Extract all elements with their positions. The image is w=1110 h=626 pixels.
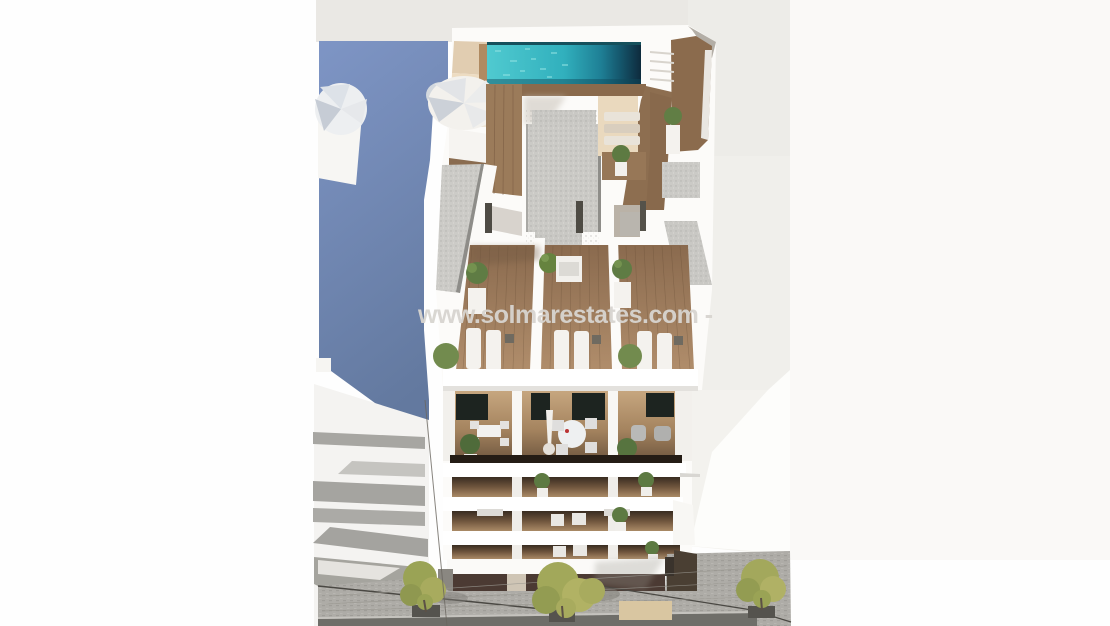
svg-text:www.solmarestates.com -: www.solmarestates.com - <box>417 301 713 329</box>
